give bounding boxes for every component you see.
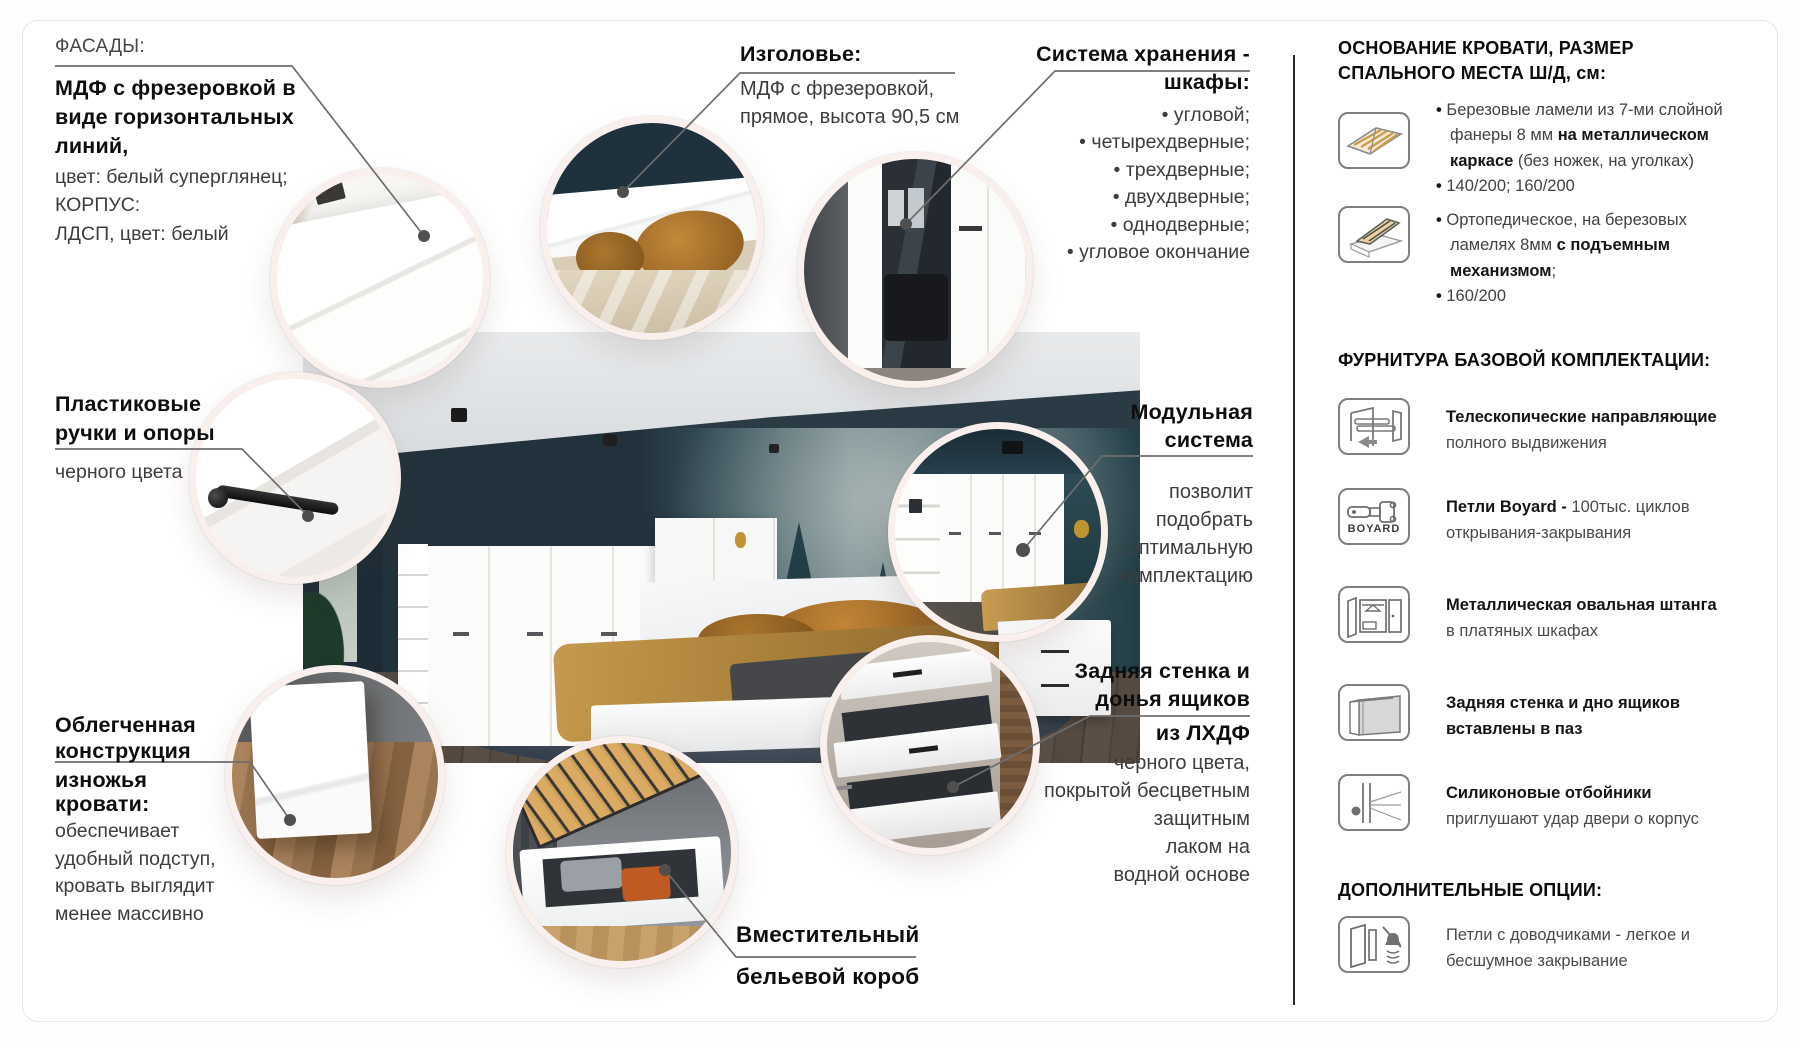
mirror-reflection-poster (888, 190, 904, 226)
hardware-item-line: Петли Boyard - 100тыс. циклов (1446, 494, 1690, 520)
headboard-title: Изголовье: (740, 40, 861, 69)
storage-title-line: Система хранения - (1036, 40, 1250, 68)
headboard-text-line: прямое, высота 90,5 см (740, 104, 959, 132)
storage-bullet: • угловое окончание (1067, 239, 1250, 266)
callout-facades-title: МДФ с фрезеровкой в виде горизонтальных … (55, 74, 296, 161)
mirror-right-doors (951, 159, 1026, 368)
modular-system-detail-photo (888, 422, 1108, 642)
footboard-bold-line: Облегченная (55, 712, 196, 738)
photo-nightstand-handle (1041, 650, 1069, 653)
mirror-left-door (848, 159, 883, 368)
callout-linenbox-title1: Вместительный (736, 920, 919, 949)
storage-bullet: • двухдверные; (1067, 184, 1250, 211)
backpanels-text-line: водной основе (1044, 861, 1250, 889)
backpanels-text-line: защитным (1044, 805, 1250, 833)
photo-ceiling-lamp (603, 434, 617, 446)
modular-shelf-column (895, 474, 940, 602)
mirror-reflection-bed (884, 274, 948, 341)
drawers-wood-strip (1000, 642, 1033, 848)
storage-bullet: • трехдверные; (1067, 157, 1250, 184)
base-item-line: • Березовые ламели из 7-ми слойной (1436, 98, 1723, 123)
modular-text-line: позволит (1119, 478, 1253, 506)
backpanels-bold-line: Задняя стенка и (1075, 658, 1250, 686)
sidebar-base-item: • Ортопедическое, на березовых ламелях 8… (1436, 208, 1687, 309)
base-item-line: каркасе (без ножек, на уголках) (1436, 149, 1723, 174)
hardware-item-line: приглушают удар двери о корпус (1446, 806, 1699, 832)
facade-detail-photo (270, 168, 490, 388)
modular-text-line: оптимальную (1119, 534, 1253, 562)
handles-bold-line: Пластиковые (55, 390, 215, 419)
oval-rod-icon (1343, 592, 1405, 638)
telescopic-slides-icon (1343, 403, 1405, 451)
base-item-line: фанеры 8 мм на металлическом (1436, 123, 1723, 148)
base-item-line: • 160/200 (1436, 284, 1687, 309)
hardware-item-line: Металлическая овальная штанга (1446, 592, 1717, 618)
black-handle-ball (208, 488, 228, 508)
callout-facades-text: цвет: белый суперглянец; КОРПУС: ЛДСП, ц… (55, 163, 288, 248)
callout-linenbox-title2: бельевой короб (736, 962, 919, 991)
sidebar-options-item: Петли с доводчиками - легкое и бесшумное… (1446, 922, 1690, 974)
sidebar-hardware-item: Телескопические направляющие полного выд… (1446, 404, 1717, 456)
headboard-detail-photo (540, 116, 764, 340)
storage-floor (513, 926, 731, 961)
callout-backpanels-title2: из ЛХДФ (1156, 719, 1250, 748)
handles-text-line: черного цвета (55, 458, 182, 486)
callout-facades-label: ФАСАДЫ: (55, 36, 145, 58)
sidebar-base-heading: ОСНОВАНИЕ КРОВАТИ, РАЗМЕР СПАЛЬНОГО МЕСТ… (1338, 36, 1634, 85)
backpanels-bold-line: из ЛХДФ (1156, 719, 1250, 748)
photo-pendant-lamp (735, 532, 746, 548)
modular-lamp (1002, 441, 1023, 453)
photo-nightstand-handle (1041, 684, 1069, 687)
storage-orange-blanket (621, 866, 671, 902)
boyard-hinge-icon: BOYARD (1338, 488, 1410, 545)
silicone-damper-icon (1338, 774, 1410, 831)
silicone-damper-icon (1343, 780, 1405, 826)
linenbox-bold-line: бельевой короб (736, 962, 919, 991)
lift-bed-icon (1338, 206, 1410, 263)
hardware-item-line: полного выдвижения (1446, 430, 1717, 456)
backpanels-text-line: лаком на (1044, 833, 1250, 861)
facades-text-line: ЛДСП, цвет: белый (55, 220, 288, 248)
modular-title-line: Модульная (1130, 398, 1253, 426)
storage-gray-blanket (560, 856, 623, 891)
footboard-bold-line: кровати: (55, 792, 149, 816)
footboard-text-line: менее массивно (55, 901, 216, 929)
sidebar-hardware-item: Металлическая овальная штанга в платяных… (1446, 592, 1717, 644)
backpanels-bold-line: донья ящиков (1075, 686, 1250, 714)
facades-bold-line: виде горизонтальных (55, 103, 296, 132)
hardware-item-line: Задняя стенка и дно ящиков (1446, 690, 1680, 716)
facades-bold-line: линий, (55, 132, 296, 161)
groove-panel-icon (1338, 684, 1410, 741)
callout-modular-text: позволит подобрать оптимальную комплекта… (1119, 478, 1253, 590)
groove-panel-icon (1343, 690, 1405, 736)
options-item-line: Петли с доводчиками - легкое и (1446, 922, 1690, 948)
footboard-text-line: обеспечивает (55, 818, 216, 846)
mirror-door-handle (959, 226, 981, 232)
footboard-detail-photo (225, 665, 445, 885)
drawers-detail-photo (820, 635, 1040, 855)
sidebar-hardware-item: Петли Boyard - 100тыс. циклов открывания… (1446, 494, 1690, 546)
footboard-text-line: удобный подступ, (55, 846, 216, 874)
soft-close-hinges-icon (1343, 921, 1405, 969)
modular-text-line: комплектацию (1119, 562, 1253, 590)
backpanels-text-line: черного цвета, (1044, 749, 1250, 777)
base-item-line: • 140/200; 160/200 (1436, 174, 1723, 199)
callout-backpanels-title1: Задняя стенка и донья ящиков (1075, 658, 1250, 713)
callout-handles-text: черного цвета (55, 458, 182, 486)
linen-box-detail-photo (506, 736, 738, 968)
callout-footboard-title2: изножья кровати: (55, 768, 149, 816)
modular-shelf-items (909, 499, 921, 513)
modular-ceiling (895, 429, 1101, 474)
telescopic-slides-icon (1338, 398, 1410, 455)
modular-title-line: система (1130, 426, 1253, 454)
boyard-brand-label: BOYARD (1348, 524, 1401, 535)
facades-text-line: КОРПУС: (55, 191, 288, 219)
catalog-page: ФАСАДЫ: МДФ с фрезеровкой в виде горизон… (0, 0, 1800, 1042)
linenbox-bold-line: Вместительный (736, 920, 919, 949)
callout-headboard-title: Изголовье: (740, 40, 861, 69)
hardware-item-line: Силиконовые отбойники (1446, 780, 1699, 806)
lift-bed-icon (1343, 212, 1405, 258)
modular-pendant (1074, 520, 1088, 539)
footboard-bold-line: конструкция (55, 738, 196, 764)
handles-bold-line: ручки и опоры (55, 419, 215, 448)
options-item-line: бесшумное закрывание (1446, 948, 1690, 974)
callout-storage-bullets: • угловой; • четырехдверные; • трехдверн… (1067, 102, 1250, 266)
heading-line: ДОПОЛНИТЕЛЬНЫЕ ОПЦИИ: (1338, 878, 1602, 903)
modular-wardrobe-handles (949, 532, 1056, 535)
sidebar-hardware-heading: ФУРНИТУРА БАЗОВОЙ КОМПЛЕКТАЦИИ: (1338, 348, 1710, 373)
sidebar-options-heading: ДОПОЛНИТЕЛЬНЫЕ ОПЦИИ: (1338, 878, 1602, 903)
soft-close-hinges-icon (1338, 916, 1410, 973)
slatted-base-icon (1338, 112, 1410, 169)
backpanels-text-line: покрытой бесцветным (1044, 777, 1250, 805)
heading-line: СПАЛЬНОГО МЕСТА Ш/Д, см: (1338, 61, 1634, 86)
callout-footboard-title1: Облегченная конструкция (55, 712, 196, 764)
oval-rod-icon (1338, 586, 1410, 643)
callout-storage-title: Система хранения - шкафы: (1036, 40, 1250, 96)
slatted-base-icon (1343, 118, 1405, 164)
callout-headboard-text: МДФ с фрезеровкой, прямое, высота 90,5 с… (740, 76, 959, 131)
sidebar-hardware-item: Задняя стенка и дно ящиков вставлены в п… (1446, 690, 1680, 742)
footboard-bold-line: изножья (55, 768, 149, 792)
storage-title-line: шкафы: (1036, 68, 1250, 96)
mirror-side-wall (804, 159, 848, 381)
heading-line: ОСНОВАНИЕ КРОВАТИ, РАЗМЕР (1338, 36, 1634, 61)
heading-line: ФУРНИТУРА БАЗОВОЙ КОМПЛЕКТАЦИИ: (1338, 348, 1710, 373)
handle-detail-photo (189, 372, 401, 584)
callout-footboard-text: обеспечивает удобный подступ, кровать вы… (55, 818, 216, 928)
facades-label: ФАСАДЫ: (55, 36, 145, 58)
modular-text-line: подобрать (1119, 506, 1253, 534)
facades-bold-line: МДФ с фрезеровкой в (55, 74, 296, 103)
handle-backdrop (196, 379, 394, 577)
facades-text-line: цвет: белый суперглянец; (55, 163, 288, 191)
callout-modular-title: Модульная система (1130, 398, 1253, 454)
photo-ceiling-lamp (451, 408, 467, 422)
boyard-hinge-icon (1345, 498, 1403, 526)
headboard-text-line: МДФ с фрезеровкой, (740, 76, 959, 104)
hardware-item-line: в платяных шкафах (1446, 618, 1717, 644)
base-item-line: механизмом; (1436, 259, 1687, 284)
callout-backpanels-text: черного цвета, покрытой бесцветным защит… (1044, 749, 1250, 889)
mirror-reflection-poster (908, 188, 924, 228)
headboard-bedding (547, 270, 757, 333)
storage-bullet: • однодверные; (1067, 212, 1250, 239)
sidebar-base-item: • Березовые ламели из 7-ми слойной фанер… (1436, 98, 1723, 199)
hardware-item-line: вставлены в паз (1446, 716, 1680, 742)
storage-bullet: • угловой; (1067, 102, 1250, 129)
mirror-wardrobe-detail-photo (797, 152, 1033, 388)
mirror-floor (804, 368, 1026, 381)
footboard-text-line: кровать выглядит (55, 873, 216, 901)
photo-ceiling-lamp (769, 444, 779, 453)
sidebar-divider (1293, 55, 1295, 1005)
hardware-item-line: открывания-закрывания (1446, 520, 1690, 546)
modular-wardrobe (940, 474, 1064, 602)
hardware-item-line: Телескопические направляющие (1446, 404, 1717, 430)
callout-handles-title: Пластиковые ручки и опоры (55, 390, 215, 448)
base-item-line: • Ортопедическое, на березовых (1436, 208, 1687, 233)
footboard-panel (249, 681, 372, 839)
base-item-line: ламелях 8мм с подъемным (1436, 233, 1687, 258)
sidebar-hardware-item: Силиконовые отбойники приглушают удар дв… (1446, 780, 1699, 832)
storage-bullet: • четырехдверные; (1067, 129, 1250, 156)
